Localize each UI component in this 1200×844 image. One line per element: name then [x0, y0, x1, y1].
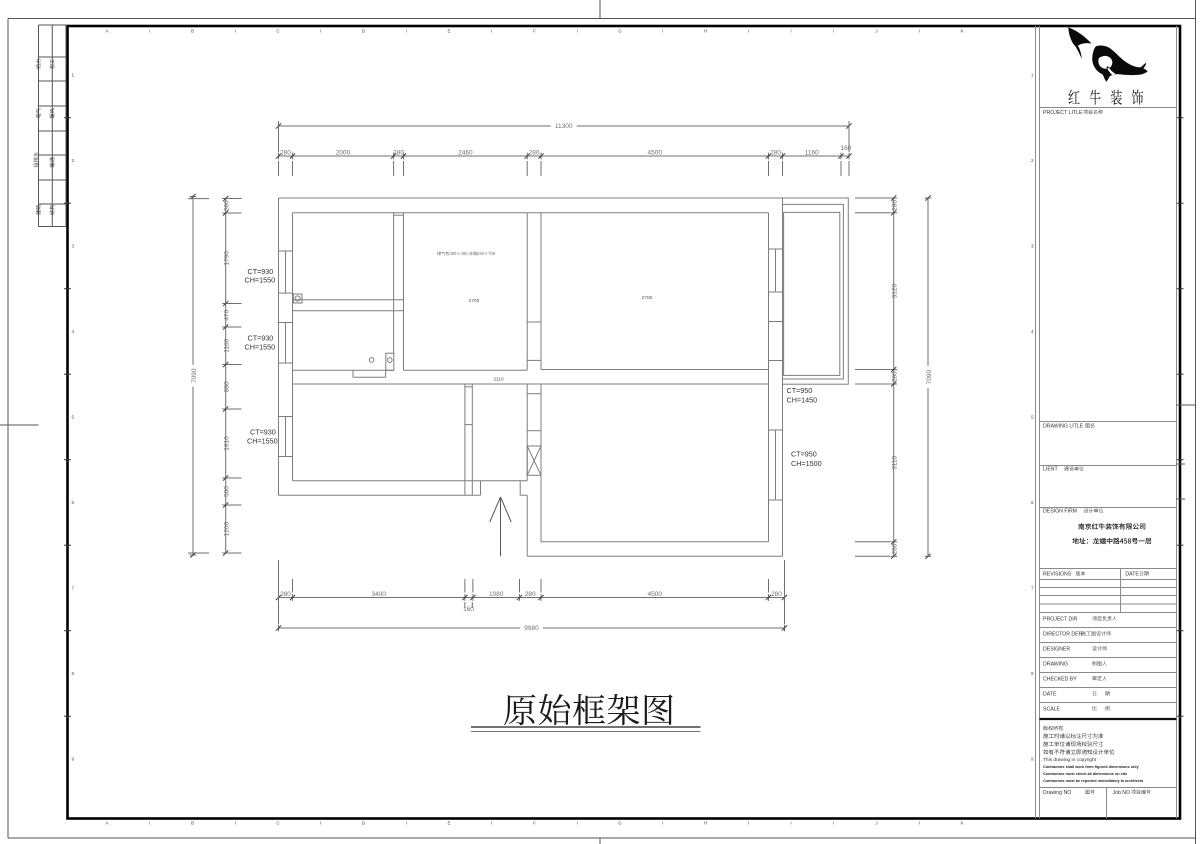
svg-text:CHECKED BY: CHECKED BY — [1043, 676, 1077, 682]
svg-text:280: 280 — [770, 149, 781, 156]
svg-text:Drawing NO: Drawing NO — [1043, 790, 1071, 796]
svg-text:2700: 2700 — [642, 295, 653, 301]
svg-text:2460: 2460 — [458, 149, 473, 156]
svg-text:PROJECT DIR: PROJECT DIR — [1043, 616, 1078, 622]
svg-text:1200: 1200 — [224, 521, 231, 536]
svg-text:DATE: DATE — [1125, 571, 1139, 577]
svg-text:I: I — [406, 821, 407, 826]
svg-text:A: A — [105, 29, 108, 34]
svg-text:CH=1550: CH=1550 — [245, 276, 276, 285]
svg-text:CH=1500: CH=1500 — [791, 459, 822, 468]
svg-text:3120: 3120 — [892, 284, 899, 299]
svg-text:280: 280 — [280, 149, 291, 156]
svg-text:This drawing in copyright: This drawing in copyright — [1043, 757, 1097, 763]
svg-text:I: I — [790, 821, 791, 826]
svg-text:I: I — [577, 29, 578, 34]
svg-text:E: E — [447, 29, 450, 34]
svg-text:I: I — [320, 29, 321, 34]
svg-text:280: 280 — [280, 591, 291, 598]
svg-text:G: G — [618, 29, 622, 34]
svg-text:G: G — [618, 821, 622, 826]
svg-text:DESIGN FIRM: DESIGN FIRM — [1043, 509, 1077, 515]
svg-text:1790: 1790 — [224, 251, 231, 266]
svg-text:CH=1450: CH=1450 — [787, 396, 818, 405]
svg-text:CT=930: CT=930 — [248, 334, 274, 343]
svg-text:160: 160 — [841, 145, 852, 152]
svg-text:3110: 3110 — [892, 456, 899, 470]
svg-text:7090: 7090 — [191, 368, 198, 383]
svg-text:DATE: DATE — [1043, 691, 1057, 697]
svg-text:2000: 2000 — [336, 149, 351, 156]
svg-text:9980: 9980 — [524, 625, 539, 632]
svg-text:I: I — [833, 29, 834, 34]
svg-text:Job NO: Job NO — [1113, 790, 1131, 796]
svg-text:PROJECT LITLE: PROJECT LITLE — [1043, 110, 1083, 116]
svg-text:280: 280 — [393, 149, 404, 156]
svg-text:I: I — [235, 821, 236, 826]
svg-text:2110: 2110 — [493, 377, 504, 383]
svg-text:CT=930: CT=930 — [250, 428, 276, 437]
svg-text:CH=1550: CH=1550 — [247, 437, 278, 446]
svg-text:B: B — [191, 821, 194, 826]
svg-text:280: 280 — [224, 200, 231, 211]
svg-text:SCALE: SCALE — [1043, 706, 1061, 712]
svg-text:CH=1550: CH=1550 — [245, 343, 276, 352]
svg-text:I: I — [919, 29, 920, 34]
svg-text:280: 280 — [892, 543, 899, 554]
svg-text:3400: 3400 — [371, 591, 386, 598]
svg-text:CT=950: CT=950 — [787, 386, 813, 395]
svg-text:I: I — [491, 821, 492, 826]
svg-text:K: K — [960, 29, 963, 34]
svg-text:Contractors must check all dim: Contractors must check all dimensions on… — [1043, 772, 1127, 776]
svg-text:F: F — [533, 29, 536, 34]
svg-text:280: 280 — [892, 200, 899, 211]
svg-text:I: I — [833, 821, 834, 826]
svg-text:I: I — [406, 29, 407, 34]
svg-text:880: 880 — [224, 381, 231, 392]
svg-text:Contractors must be reported i: Contractors must be reported immediately… — [1043, 779, 1143, 783]
svg-text:I: I — [662, 29, 663, 34]
svg-text:DIRECTOR DER: DIRECTOR DER — [1043, 631, 1083, 637]
svg-text:E: E — [447, 821, 450, 826]
svg-text:1160: 1160 — [805, 149, 819, 156]
svg-text:4500: 4500 — [648, 591, 663, 598]
svg-text:I: I — [149, 29, 150, 34]
svg-text:I: I — [577, 821, 578, 826]
svg-text:A: A — [105, 821, 108, 826]
svg-text:J: J — [875, 821, 877, 826]
svg-text:7090: 7090 — [926, 369, 933, 384]
svg-text:I: I — [491, 29, 492, 34]
svg-text:1160: 1160 — [224, 338, 231, 352]
svg-text:2700: 2700 — [469, 298, 480, 304]
svg-text:B: B — [191, 29, 194, 34]
svg-text:280: 280 — [525, 591, 536, 598]
svg-text:4500: 4500 — [648, 149, 663, 156]
svg-text:I: I — [790, 29, 791, 34]
svg-text:DRAWING LITLE: DRAWING LITLE — [1043, 423, 1084, 429]
svg-text:280: 280 — [892, 371, 899, 382]
svg-text:1910: 1910 — [224, 436, 231, 451]
svg-text:LIENT: LIENT — [1043, 467, 1059, 473]
svg-text:I: I — [748, 29, 749, 34]
svg-text:470: 470 — [224, 309, 231, 320]
svg-text:500: 500 — [224, 486, 231, 497]
svg-text:11300: 11300 — [555, 123, 573, 130]
svg-text:DRAWING: DRAWING — [1043, 661, 1068, 667]
svg-text:H: H — [704, 29, 707, 34]
svg-text:I: I — [149, 821, 150, 826]
svg-text:REVISIONS: REVISIONS — [1043, 571, 1072, 577]
svg-text:K: K — [960, 821, 963, 826]
svg-text:F: F — [533, 821, 536, 826]
svg-text:I: I — [320, 821, 321, 826]
svg-text:1080: 1080 — [489, 591, 504, 598]
svg-text:280: 280 — [771, 591, 782, 598]
svg-text:I: I — [748, 821, 749, 826]
svg-text:CT=950: CT=950 — [791, 450, 817, 459]
svg-text:H: H — [704, 821, 707, 826]
svg-text:I: I — [919, 821, 920, 826]
svg-text:DESIGNER: DESIGNER — [1043, 646, 1070, 652]
svg-text:I: I — [662, 821, 663, 826]
svg-text:Contractors shall work form fi: Contractors shall work form figured dime… — [1043, 765, 1139, 769]
svg-text:J: J — [875, 29, 877, 34]
svg-text:280: 280 — [529, 149, 540, 156]
svg-text:I: I — [235, 29, 236, 34]
